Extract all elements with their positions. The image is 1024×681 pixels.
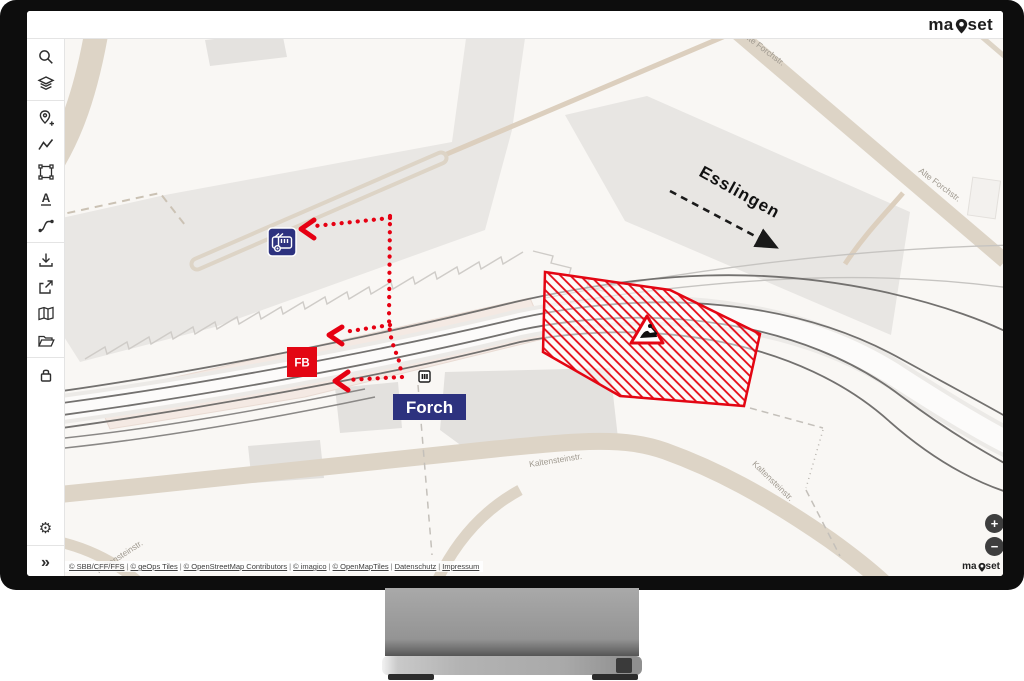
map-canvas[interactable]: Alte Forchstr. Alte Forchstr. Kaltenstei… — [65, 39, 1003, 576]
add-text-icon: A — [37, 190, 55, 208]
monitor-stand-detail — [616, 658, 632, 673]
text-tool-glyph: A — [41, 191, 50, 205]
expand-sidebar-button[interactable]: » — [31, 549, 61, 576]
mapset-watermark: maset — [962, 560, 1000, 573]
lock-button[interactable] — [31, 361, 61, 388]
attribution-bar: © SBB/CFF/FFS|© geOps Tiles|© OpenStreet… — [65, 561, 483, 572]
monitor-stand — [385, 588, 639, 656]
attribution-separator: | — [180, 562, 182, 571]
app-window: maset A — [27, 11, 1003, 576]
attribution-separator: | — [289, 562, 291, 571]
attribution-link[interactable]: © geOps Tiles — [130, 562, 177, 571]
forch-label-text: Forch — [406, 398, 453, 417]
open-folder-button[interactable] — [31, 327, 61, 354]
gear-icon: ⚙ — [39, 521, 52, 536]
lock-icon — [37, 366, 55, 384]
attribution-link[interactable]: © OpenMapTiles — [333, 562, 389, 571]
tools-sidebar: A ⚙ » — [27, 39, 65, 576]
add-location-icon — [37, 109, 55, 127]
open-folder-icon — [37, 332, 55, 350]
add-text-button[interactable]: A — [31, 185, 61, 212]
map-pin-icon — [978, 562, 986, 573]
attribution-link[interactable]: © SBB/CFF/FFS — [69, 562, 125, 571]
fb-marker-label: FB — [294, 358, 309, 370]
attribution-link[interactable]: Impressum — [442, 562, 479, 571]
share-button[interactable] — [31, 273, 61, 300]
layers-icon — [37, 75, 55, 93]
draw-route-button[interactable] — [31, 212, 61, 239]
monitor-stand-base — [382, 656, 642, 675]
map-pin-icon — [955, 18, 968, 35]
monitor-bezel: maset A — [0, 0, 1024, 590]
download-button[interactable] — [31, 246, 61, 273]
attribution-separator: | — [127, 562, 129, 571]
draw-polygon-button[interactable] — [31, 158, 61, 185]
forch-station-label[interactable]: Forch — [393, 394, 466, 420]
attribution-separator: | — [391, 562, 393, 571]
search-button[interactable] — [31, 43, 61, 70]
map-view-icon — [37, 305, 55, 323]
sidebar-divider — [27, 357, 65, 358]
map-view-button[interactable] — [31, 300, 61, 327]
top-bar: maset — [27, 11, 1003, 39]
logo-suffix: set — [986, 561, 1000, 572]
bus-stop-marker[interactable] — [268, 228, 296, 256]
monitor-foot — [592, 674, 638, 680]
draw-polygon-icon — [37, 163, 55, 181]
logo-prefix: ma — [962, 561, 976, 572]
attribution-link[interactable]: © imagico — [293, 562, 326, 571]
search-icon — [37, 48, 55, 66]
attribution-separator: | — [329, 562, 331, 571]
basemap: Alte Forchstr. Alte Forchstr. Kaltenstei… — [65, 39, 1003, 576]
chevron-right-icon: » — [41, 555, 50, 571]
add-location-button[interactable] — [31, 104, 61, 131]
draw-line-button[interactable] — [31, 131, 61, 158]
draw-line-icon — [37, 136, 55, 154]
sidebar-divider — [27, 100, 65, 101]
station-pictogram — [419, 371, 430, 382]
attribution-separator: | — [438, 562, 440, 571]
map-container: Alte Forchstr. Alte Forchstr. Kaltenstei… — [65, 39, 1003, 576]
settings-button[interactable]: ⚙ — [31, 515, 61, 542]
draw-route-icon — [37, 217, 55, 235]
share-icon — [37, 278, 55, 296]
zoom-out-button[interactable]: − — [985, 537, 1003, 556]
layers-button[interactable] — [31, 70, 61, 97]
monitor-foot — [388, 674, 434, 680]
sidebar-divider — [27, 545, 65, 546]
logo-suffix: set — [968, 15, 993, 35]
attribution-link[interactable]: Datenschutz — [395, 562, 437, 571]
logo-prefix: ma — [928, 15, 953, 35]
attribution-link[interactable]: © OpenStreetMap Contributors — [184, 562, 288, 571]
sidebar-divider — [27, 242, 65, 243]
zoom-in-button[interactable]: + — [985, 514, 1003, 533]
mapset-logo: maset — [928, 15, 993, 35]
monitor-mockup: maset A — [0, 0, 1024, 681]
fb-marker[interactable]: FB — [287, 347, 317, 377]
download-icon — [37, 251, 55, 269]
building-topright — [967, 177, 1000, 219]
